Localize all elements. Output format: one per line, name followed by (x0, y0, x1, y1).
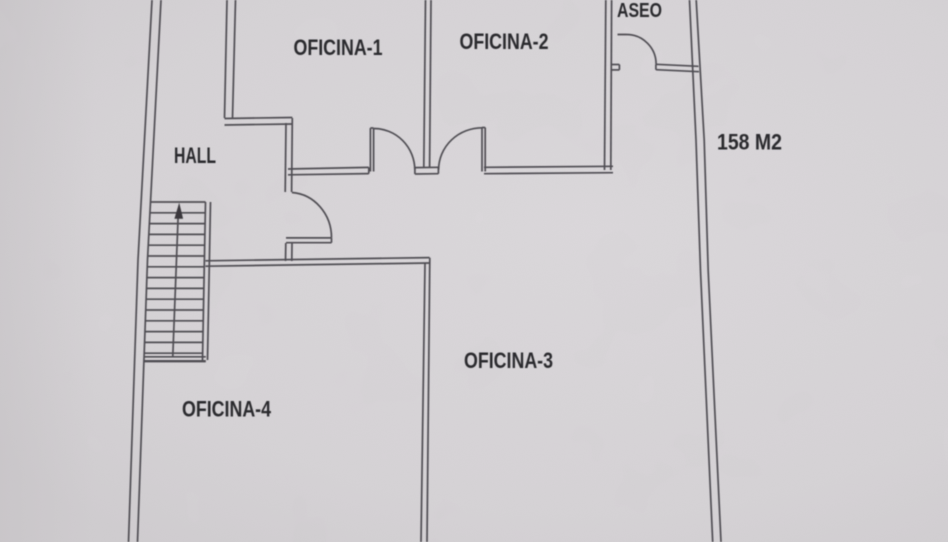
svg-text:ASEO: ASEO (617, 0, 662, 22)
svg-text:OFICINA-3: OFICINA-3 (464, 348, 553, 373)
svg-text:OFICINA-1: OFICINA-1 (294, 35, 383, 60)
svg-text:HALL: HALL (174, 143, 216, 168)
svg-text:158 M2: 158 M2 (717, 130, 782, 155)
svg-text:OFICINA-2: OFICINA-2 (460, 29, 549, 54)
svg-text:OFICINA-4: OFICINA-4 (182, 397, 271, 422)
